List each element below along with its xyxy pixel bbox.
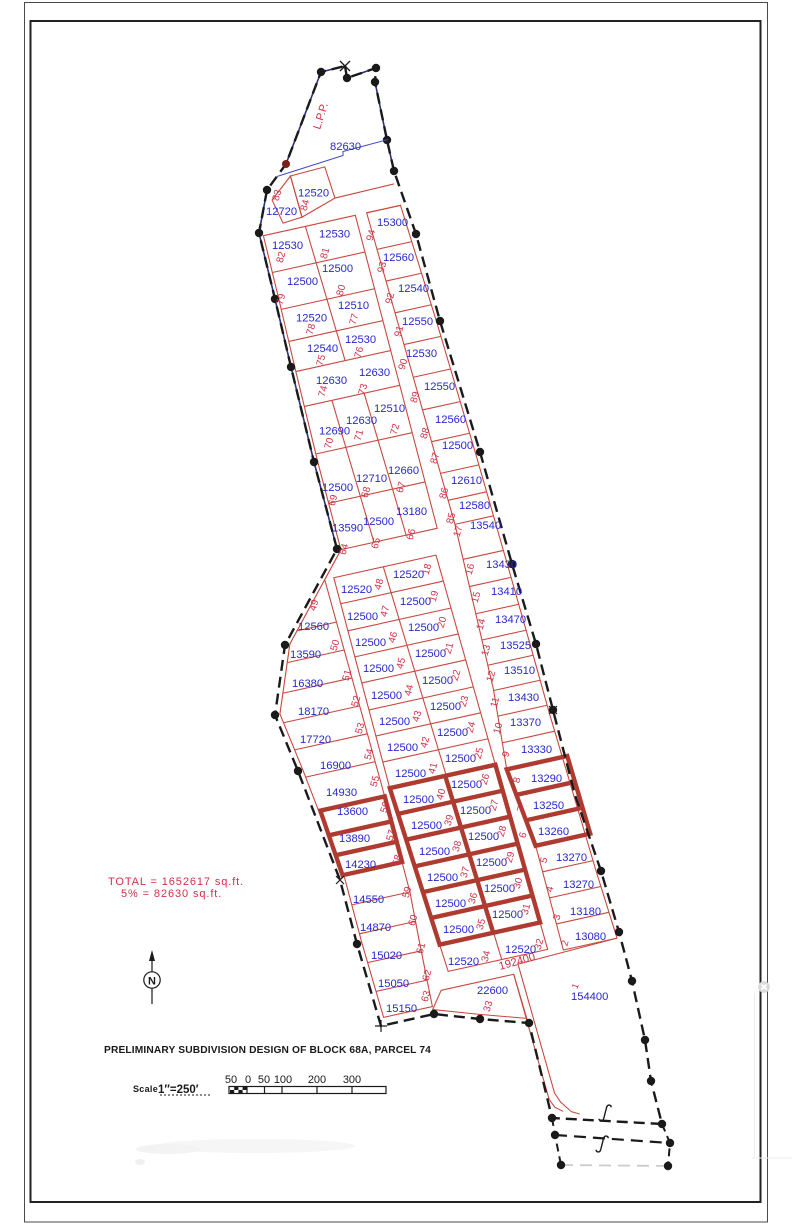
svg-text:13330: 13330 [521, 744, 552, 756]
svg-text:12500: 12500 [435, 898, 466, 910]
svg-text:Scale: Scale [133, 1084, 158, 1094]
svg-text:12500: 12500 [322, 263, 353, 275]
svg-text:12520: 12520 [296, 312, 327, 324]
svg-text:13590: 13590 [290, 649, 321, 661]
svg-text:12530: 12530 [406, 348, 437, 360]
svg-text:12540: 12540 [398, 283, 429, 295]
svg-text:22600: 22600 [477, 985, 508, 997]
svg-text:12520: 12520 [393, 569, 424, 581]
svg-text:N: N [148, 976, 156, 988]
svg-text:13430: 13430 [486, 559, 517, 571]
svg-text:15050: 15050 [378, 978, 409, 990]
svg-text:12630: 12630 [359, 367, 390, 379]
svg-text:13180: 13180 [396, 506, 427, 518]
svg-text:12500: 12500 [371, 690, 402, 702]
svg-text:12580: 12580 [459, 500, 490, 512]
svg-text:16900: 16900 [320, 760, 351, 772]
svg-text:13890: 13890 [339, 833, 370, 845]
svg-text:50: 50 [258, 1074, 270, 1086]
svg-text:13250: 13250 [533, 800, 564, 812]
svg-text:13470: 13470 [495, 614, 526, 626]
svg-text:15300: 15300 [377, 217, 408, 229]
svg-text:12720: 12720 [266, 206, 297, 218]
svg-text:13600: 13600 [337, 806, 368, 818]
svg-text:12530: 12530 [319, 229, 350, 241]
svg-text:1″=250′: 1″=250′ [158, 1084, 199, 1096]
svg-text:12500: 12500 [484, 883, 515, 895]
svg-text:300: 300 [343, 1074, 361, 1086]
svg-text:13590: 13590 [332, 523, 363, 535]
svg-text:14230: 14230 [345, 859, 376, 871]
svg-text:12500: 12500 [419, 846, 450, 858]
svg-text:12550: 12550 [402, 316, 433, 328]
svg-text:13260: 13260 [538, 826, 569, 838]
svg-text:12500: 12500 [445, 753, 476, 765]
svg-text:12500: 12500 [437, 727, 468, 739]
svg-text:50: 50 [225, 1074, 237, 1086]
svg-text:13270: 13270 [556, 852, 587, 864]
svg-text:12500: 12500 [400, 596, 431, 608]
svg-text:13180: 13180 [570, 906, 601, 918]
svg-text:12560: 12560 [298, 621, 329, 633]
svg-text:12530: 12530 [272, 240, 303, 252]
svg-text:200: 200 [308, 1074, 326, 1086]
svg-text:13525: 13525 [500, 640, 531, 652]
svg-text:13510: 13510 [504, 665, 535, 677]
svg-text:12500: 12500 [287, 276, 318, 288]
svg-text:15020: 15020 [371, 950, 402, 962]
svg-text:12500: 12500 [355, 637, 386, 649]
svg-text:TOTAL = 1652617 sq.ft.: TOTAL = 1652617 sq.ft. [108, 876, 244, 888]
svg-text:12500: 12500 [442, 440, 473, 452]
svg-text:12500: 12500 [395, 768, 426, 780]
svg-text:12500: 12500 [443, 924, 474, 936]
svg-text:12560: 12560 [383, 252, 414, 264]
svg-text:5% = 82630 sq.ft.: 5% = 82630 sq.ft. [121, 888, 222, 900]
svg-text:18170: 18170 [298, 706, 329, 718]
svg-text:12500: 12500 [411, 820, 442, 832]
svg-text:12630: 12630 [346, 415, 377, 427]
svg-text:12500: 12500 [415, 648, 446, 660]
svg-text:13080: 13080 [575, 931, 606, 943]
svg-text:12510: 12510 [374, 403, 405, 415]
svg-text:13290: 13290 [531, 773, 562, 785]
svg-text:13270: 13270 [563, 879, 594, 891]
svg-text:12610: 12610 [451, 475, 482, 487]
svg-text:82630: 82630 [330, 141, 361, 153]
svg-text:12530: 12530 [345, 334, 376, 346]
svg-text:14870: 14870 [360, 922, 391, 934]
svg-text:100: 100 [274, 1074, 292, 1086]
svg-text:14930: 14930 [326, 787, 357, 799]
svg-text:13540: 13540 [470, 520, 501, 532]
svg-text:0: 0 [245, 1074, 251, 1086]
svg-text:12510: 12510 [338, 300, 369, 312]
svg-text:12500: 12500 [347, 611, 378, 623]
svg-text:12500: 12500 [422, 675, 453, 687]
svg-text:12560: 12560 [435, 414, 466, 426]
svg-text:12500: 12500 [468, 831, 499, 843]
svg-text:12500: 12500 [387, 742, 418, 754]
svg-text:154400: 154400 [571, 991, 608, 1003]
svg-text:13410: 13410 [491, 586, 522, 598]
svg-text:12500: 12500 [427, 872, 458, 884]
svg-text:16380: 16380 [292, 678, 323, 690]
svg-text:12500: 12500 [363, 516, 394, 528]
svg-text:PRELIMINARY SUBDIVISION DESI: PRELIMINARY SUBDIVISION DESIGN OF BLOCK … [104, 1045, 431, 1056]
svg-text:12500: 12500 [408, 622, 439, 634]
svg-text:12500: 12500 [451, 779, 482, 791]
svg-text:12500: 12500 [322, 482, 353, 494]
svg-text:12520: 12520 [341, 584, 372, 596]
svg-text:12520: 12520 [448, 956, 479, 968]
svg-text:15150: 15150 [386, 1003, 417, 1015]
svg-text:12690: 12690 [319, 426, 350, 438]
svg-text:12550: 12550 [424, 381, 455, 393]
svg-text:12500: 12500 [403, 794, 434, 806]
svg-text:17720: 17720 [300, 734, 331, 746]
svg-text:12500: 12500 [379, 716, 410, 728]
svg-text:12500: 12500 [430, 701, 461, 713]
svg-text:12500: 12500 [460, 805, 491, 817]
svg-text:12520: 12520 [298, 188, 329, 200]
svg-text:12500: 12500 [476, 857, 507, 869]
svg-text:14550: 14550 [353, 894, 384, 906]
svg-text:12710: 12710 [356, 473, 387, 485]
svg-text:12540: 12540 [307, 343, 338, 355]
svg-text:13370: 13370 [510, 717, 541, 729]
svg-text:13430: 13430 [508, 692, 539, 704]
svg-text:12660: 12660 [388, 465, 419, 477]
svg-text:12500: 12500 [492, 909, 523, 921]
svg-text:12500: 12500 [363, 663, 394, 675]
